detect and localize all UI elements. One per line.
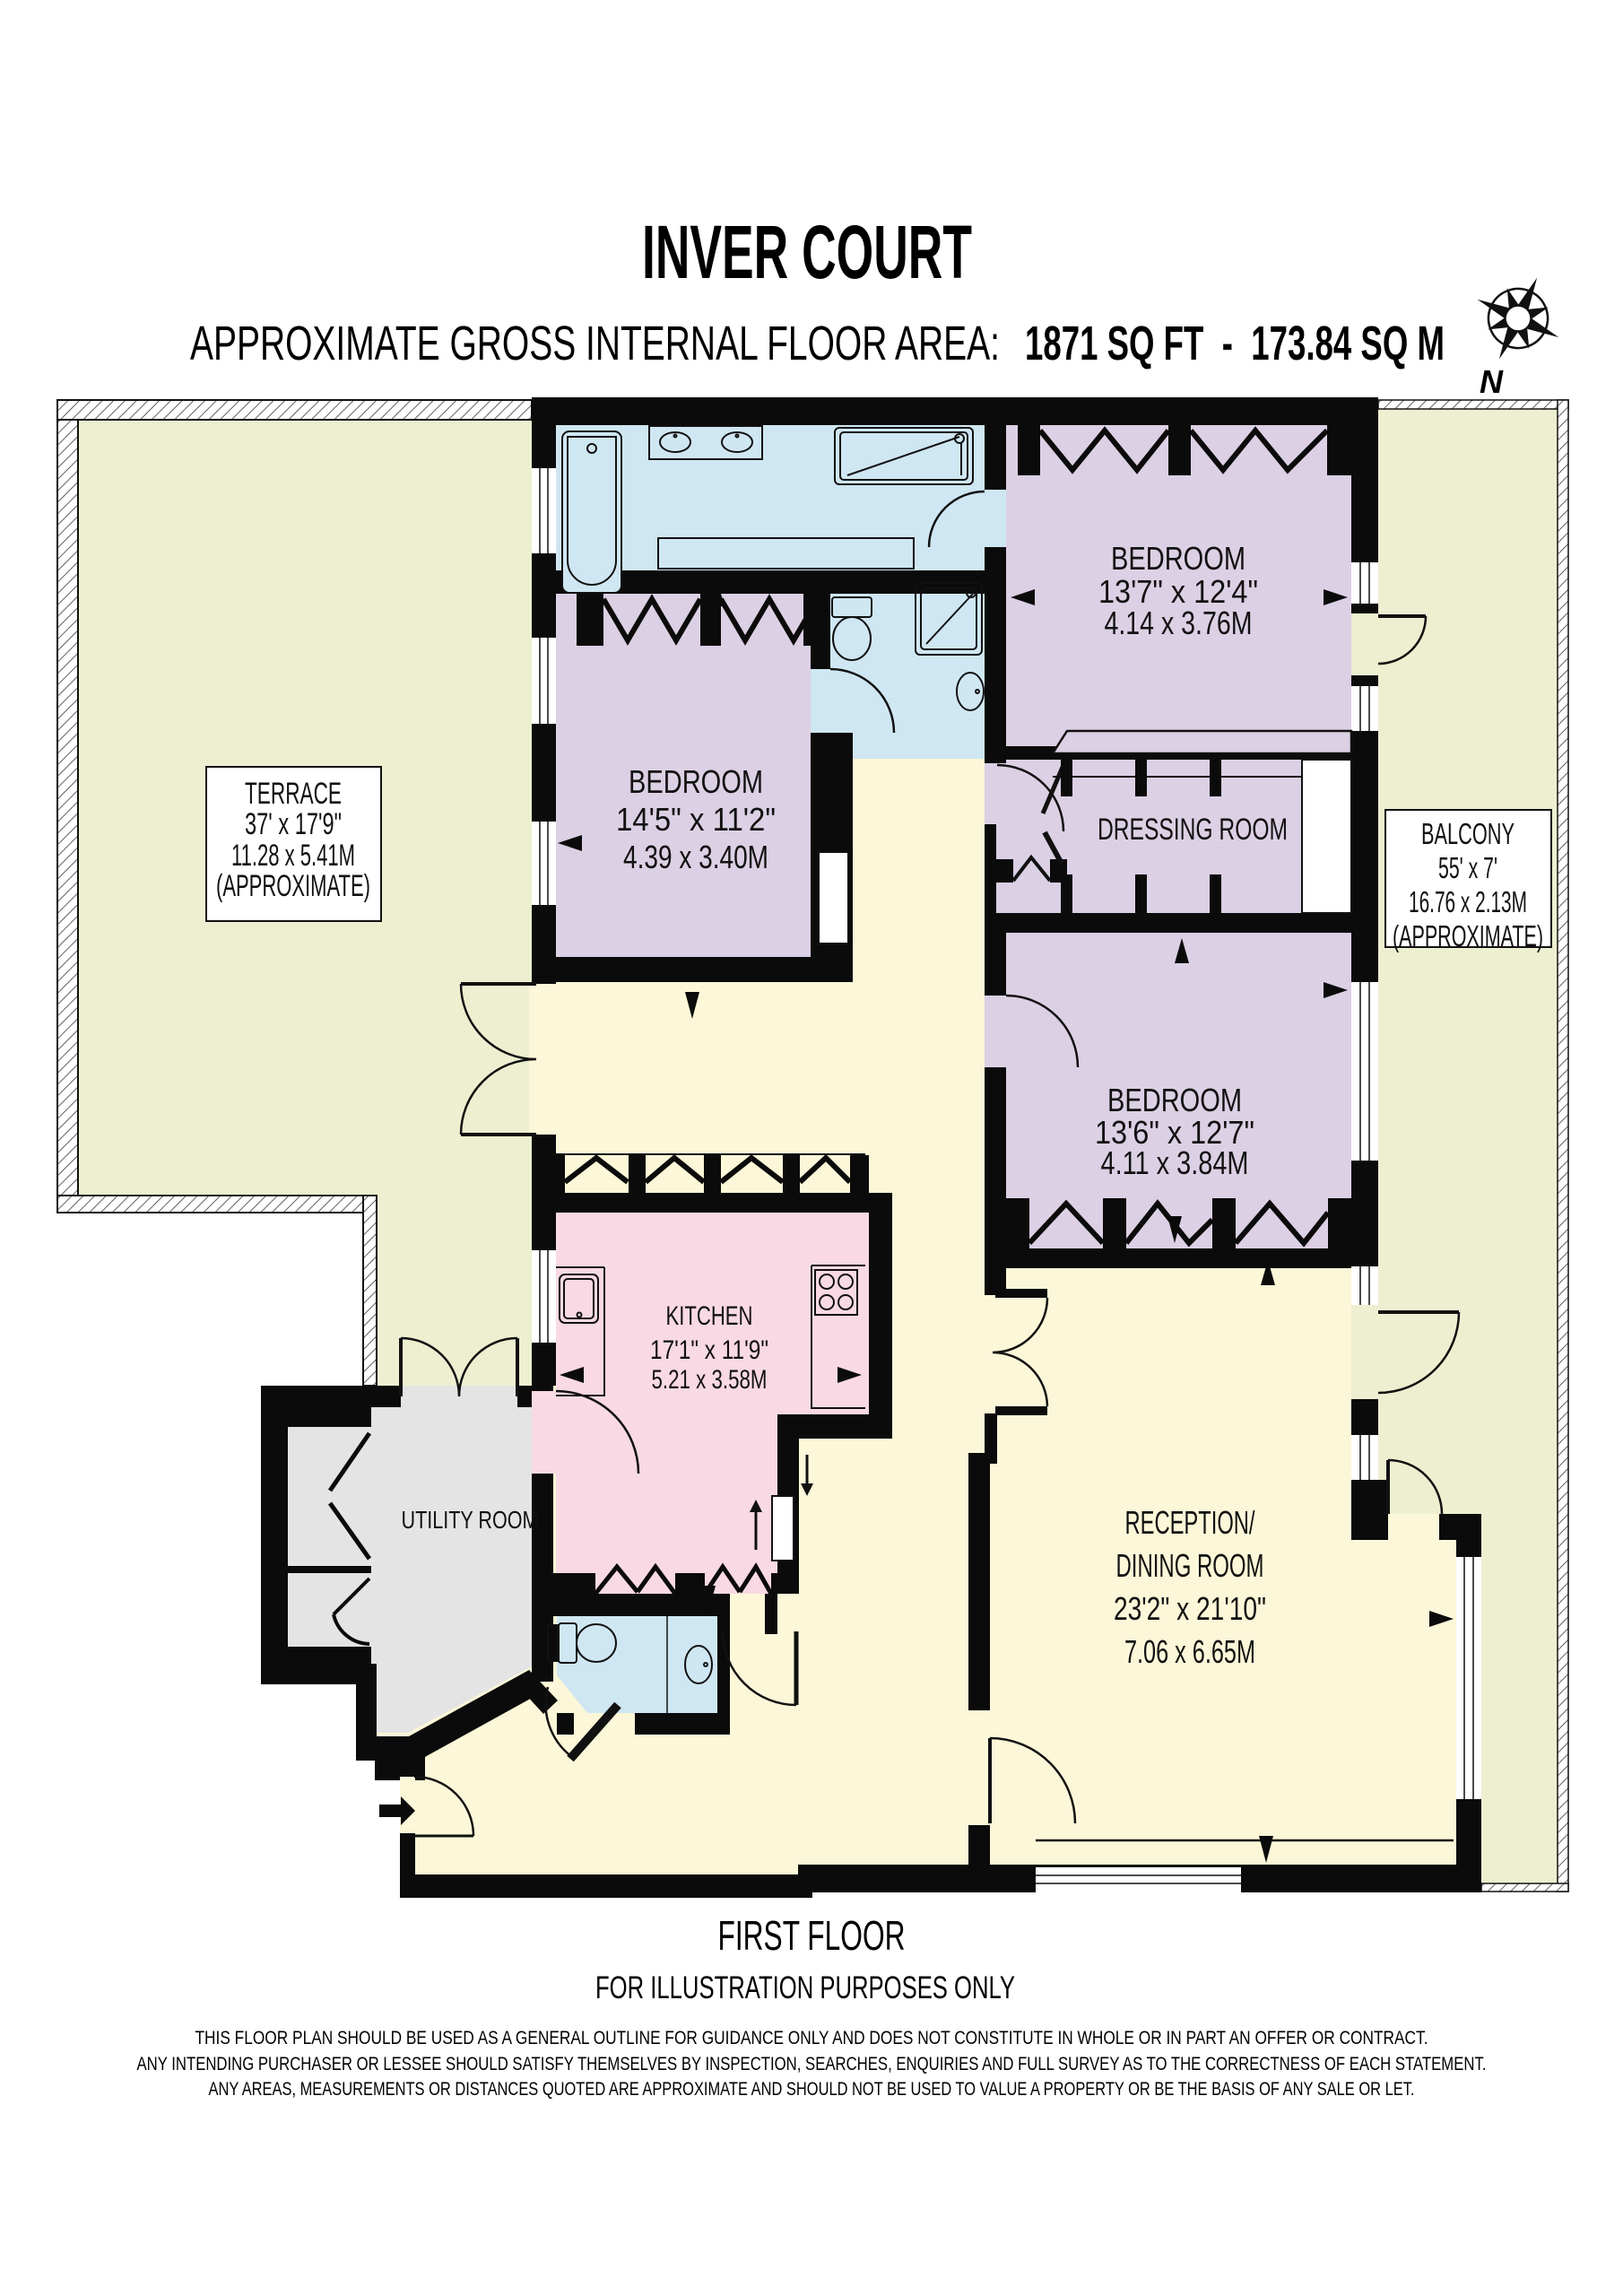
svg-text:THIS FLOOR PLAN SHOULD BE USED: THIS FLOOR PLAN SHOULD BE USED AS A GENE… [195, 2027, 1428, 2048]
svg-text:INVER COURT: INVER COURT [642, 210, 972, 294]
svg-text:55' x 7': 55' x 7' [1438, 851, 1497, 884]
svg-text:FIRST FLOOR: FIRST FLOOR [718, 1912, 906, 1959]
svg-text:BEDROOM: BEDROOM [1111, 540, 1245, 577]
svg-text:23'2" x 21'10": 23'2" x 21'10" [1114, 1590, 1266, 1627]
svg-text:BEDROOM: BEDROOM [629, 763, 763, 800]
svg-text:17'1" x 11'9": 17'1" x 11'9" [650, 1335, 768, 1365]
svg-text:TERRACE: TERRACE [245, 777, 342, 811]
svg-text:4.39 x 3.40M: 4.39 x 3.40M [623, 839, 768, 875]
svg-text:37' x 17'9": 37' x 17'9" [245, 807, 342, 841]
svg-text:(APPROXIMATE): (APPROXIMATE) [216, 869, 370, 903]
svg-text:(APPROXIMATE): (APPROXIMATE) [1393, 919, 1543, 952]
svg-text:ANY AREAS, MEASUREMENTS OR DIS: ANY AREAS, MEASUREMENTS OR DISTANCES QUO… [209, 2078, 1415, 2100]
svg-text:DRESSING ROOM: DRESSING ROOM [1098, 813, 1288, 847]
svg-text:UTILITY ROOM: UTILITY ROOM [402, 1506, 539, 1534]
svg-text:APPROXIMATE GROSS INTERNAL FLO: APPROXIMATE GROSS INTERNAL FLOOR AREA: [190, 317, 1000, 370]
svg-text:11.28 x 5.41M: 11.28 x 5.41M [231, 839, 355, 873]
svg-text:1871 SQ FT - 173.84 SQ M: 1871 SQ FT - 173.84 SQ M [1025, 317, 1445, 370]
svg-text:ANY INTENDING PURCHASER OR LES: ANY INTENDING PURCHASER OR LESSEE SHOULD… [137, 2053, 1487, 2074]
svg-text:RECEPTION/: RECEPTION/ [1125, 1504, 1255, 1541]
svg-text:N: N [1480, 363, 1504, 400]
svg-text:4.11 x 3.84M: 4.11 x 3.84M [1101, 1144, 1249, 1181]
svg-text:KITCHEN: KITCHEN [666, 1301, 753, 1331]
svg-text:DINING ROOM: DINING ROOM [1116, 1547, 1264, 1584]
svg-text:4.14 x 3.76M: 4.14 x 3.76M [1105, 604, 1253, 641]
svg-text:FOR ILLUSTRATION PURPOSES ONLY: FOR ILLUSTRATION PURPOSES ONLY [595, 1970, 1015, 2005]
svg-text:5.21 x 3.58M: 5.21 x 3.58M [652, 1365, 768, 1395]
svg-text:7.06 x 6.65M: 7.06 x 6.65M [1124, 1633, 1255, 1670]
svg-text:BEDROOM: BEDROOM [1107, 1082, 1242, 1118]
svg-text:BALCONY: BALCONY [1421, 817, 1515, 850]
svg-text:14'5" x 11'2": 14'5" x 11'2" [616, 801, 776, 838]
svg-text:16.76 x 2.13M: 16.76 x 2.13M [1409, 885, 1527, 918]
